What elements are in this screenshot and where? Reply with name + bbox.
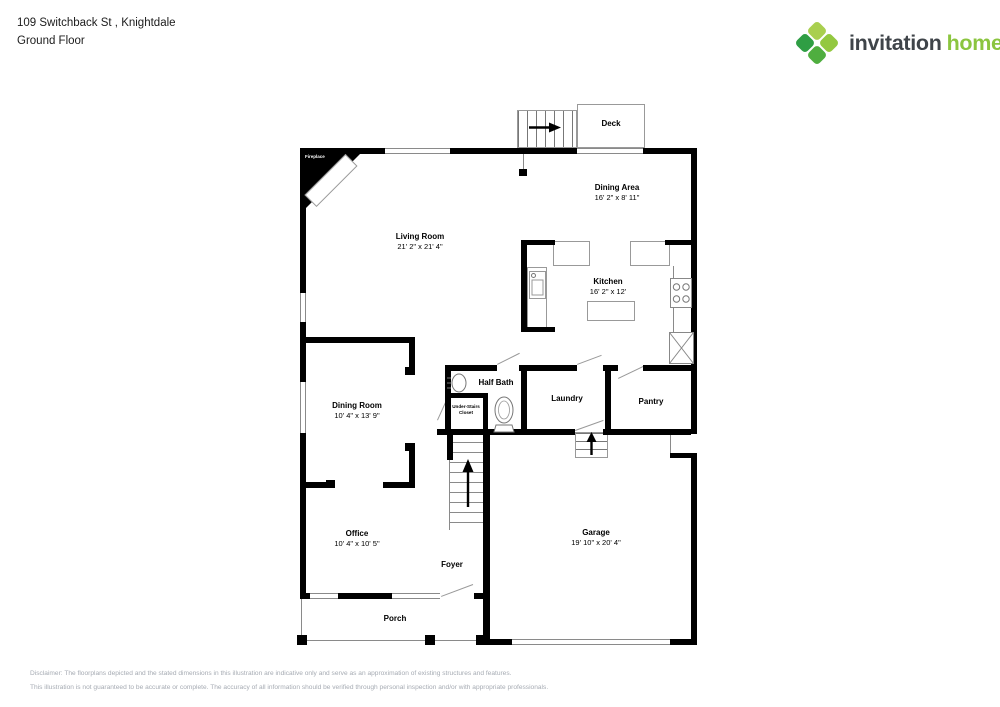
pantry-door-swing <box>618 366 644 379</box>
wall <box>665 240 691 245</box>
wall <box>603 429 691 435</box>
floorplan-page: 109 Switchback St , Knightdale Ground Fl… <box>0 0 1000 707</box>
toilet-icon <box>492 396 516 434</box>
stairs-up-arrow-icon <box>460 457 476 510</box>
floorplan-drawing: Fireplace <box>0 0 1000 707</box>
kitchen-counter <box>553 241 590 266</box>
wall <box>445 365 497 371</box>
window <box>300 293 306 322</box>
wall <box>521 240 527 332</box>
wall <box>300 337 415 343</box>
kitchen-island <box>587 301 635 321</box>
wall <box>643 365 693 371</box>
wall <box>691 453 697 645</box>
room-label-porch: Porch <box>384 613 407 624</box>
kitchen-counter <box>630 241 670 266</box>
fireplace-label: Fireplace <box>305 154 325 159</box>
sliding-door <box>577 148 643 154</box>
stove-icon <box>670 278 692 308</box>
room-label-pantry: Pantry <box>639 396 664 407</box>
room-label-kitchen: Kitchen 16' 2" x 12' <box>590 276 626 297</box>
wall <box>521 365 527 435</box>
room-label-deck: Deck <box>601 118 620 129</box>
line <box>449 459 450 530</box>
window <box>310 593 338 599</box>
line <box>673 307 674 333</box>
wall <box>483 430 490 645</box>
room-label-laundry: Laundry <box>551 393 583 404</box>
wall <box>605 365 611 435</box>
half-bath-door-swing <box>497 353 520 365</box>
room-label-dining-room: Dining Room 10' 4" x 13' 9" <box>332 400 382 421</box>
wall <box>425 635 435 645</box>
wall <box>338 593 392 599</box>
garage-door <box>510 639 672 645</box>
laundry-door-swing <box>577 355 602 365</box>
disclaimer-line-1: Disclaimer: The floorplans depicted and … <box>30 667 548 681</box>
window <box>300 382 306 433</box>
front-door-swing <box>441 584 473 597</box>
laundry-door-swing <box>575 420 604 431</box>
garage-steps-up-arrow-icon <box>584 431 599 457</box>
disclaimer: Disclaimer: The floorplans depicted and … <box>30 667 548 694</box>
wall <box>643 148 697 154</box>
room-label-under-stairs-closet: Under-Stairs Closet <box>452 404 480 416</box>
wall <box>483 393 488 434</box>
room-label-dining-area: Dining Area 16' 2" x 8' 11" <box>595 182 640 203</box>
line <box>670 434 671 454</box>
disclaimer-line-2: This illustration is not guaranteed to b… <box>30 681 548 695</box>
wall <box>519 169 527 176</box>
wall <box>300 433 306 599</box>
wall <box>521 240 555 245</box>
wall <box>383 482 415 488</box>
room-label-garage: Garage 19' 10" x 20' 4" <box>571 527 620 548</box>
wall <box>300 322 306 382</box>
room-label-foyer: Foyer <box>441 559 463 570</box>
refrigerator-icon <box>669 332 694 364</box>
bathroom-sink-icon <box>446 372 468 394</box>
wall <box>450 148 577 154</box>
wall <box>297 635 307 645</box>
wall <box>603 365 618 371</box>
window <box>392 593 440 599</box>
wall <box>519 365 577 371</box>
deck-direction-arrow-icon <box>527 121 563 134</box>
room-label-half-bath: Half Bath <box>478 377 513 388</box>
line <box>523 154 524 170</box>
line <box>301 640 484 641</box>
kitchen-sink-icon <box>529 271 546 299</box>
room-label-office: Office 10' 4" x 10' 5" <box>334 528 379 549</box>
room-label-living-room: Living Room 21' 2" x 21' 4" <box>396 231 444 252</box>
window <box>385 148 450 154</box>
